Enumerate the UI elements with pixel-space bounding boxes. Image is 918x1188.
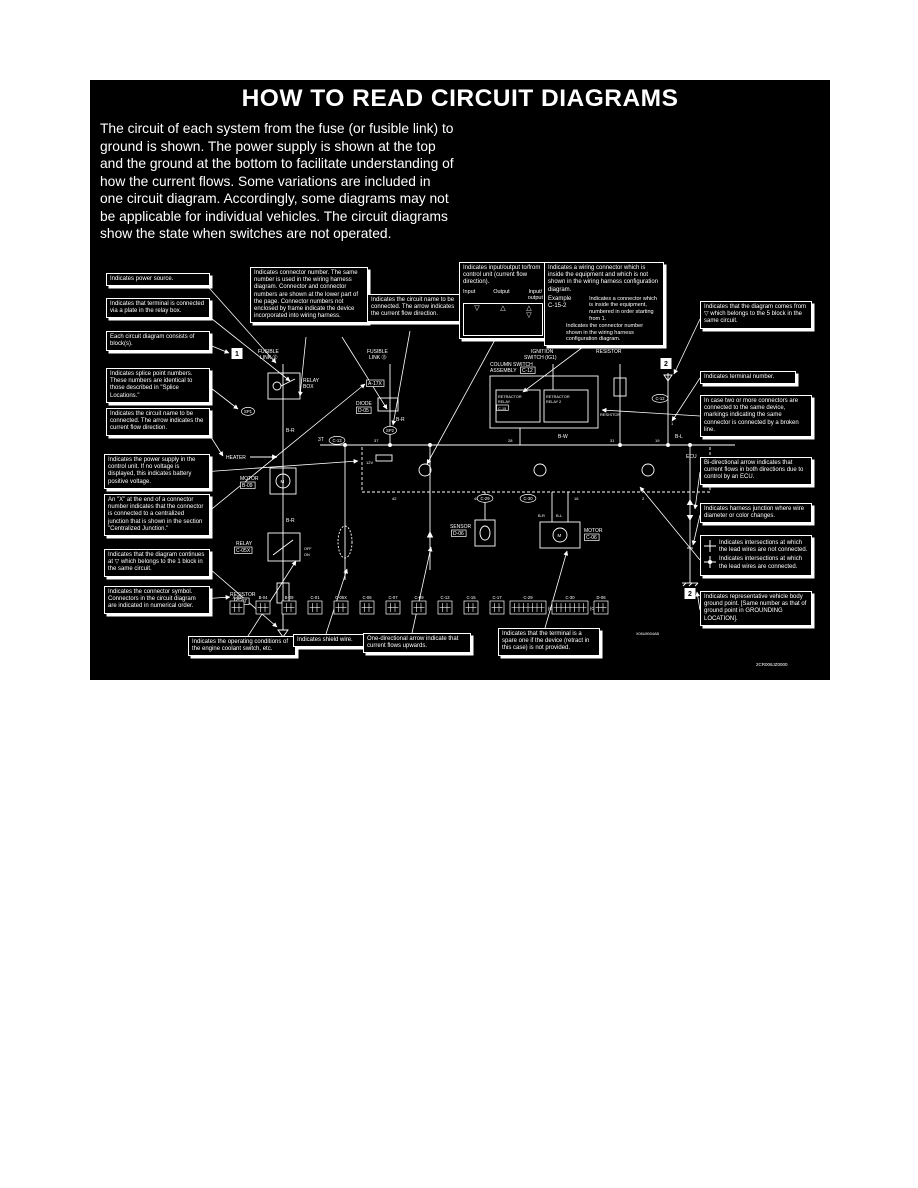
- svg-text:LINK ⑬: LINK ⑬: [369, 354, 387, 361]
- callout-terminal-number: Indicates terminal number.: [700, 371, 796, 384]
- svg-text:OFF: OFF: [304, 547, 312, 551]
- callout-harness-junction: Indicates harness junction where wire di…: [700, 503, 812, 523]
- wiring-connector-example: Example C-15-2: [548, 296, 586, 322]
- io-labels: Input Output Input/ output: [463, 289, 543, 302]
- svg-text:B-04: B-04: [259, 595, 269, 600]
- wiring-connector-note-number: Indicates the connector number shown in …: [548, 323, 660, 343]
- svg-text:C-30: C-30: [565, 595, 575, 600]
- callout-diagram-comes-from: Indicates that the diagram comes from ▽ …: [700, 301, 812, 329]
- callout-intersections: Indicates intersections at which the lea…: [700, 535, 812, 576]
- callout-operating-conditions: Indicates the operating conditions of th…: [188, 636, 296, 656]
- wiring-connector-note-equipment: Indicates a connector which is inside th…: [589, 296, 660, 322]
- svg-text:1: 1: [671, 421, 674, 426]
- svg-text:C-30: C-30: [523, 496, 533, 501]
- svg-text:B-W: B-W: [558, 434, 568, 440]
- svg-text:D-05: D-05: [358, 408, 369, 414]
- svg-text:16: 16: [574, 496, 579, 501]
- svg-text:C-29: C-29: [523, 595, 533, 600]
- svg-text:42: 42: [392, 496, 397, 501]
- svg-text:19: 19: [655, 438, 660, 443]
- io-symbol-box: ▽ △ △ ▽: [463, 303, 543, 336]
- svg-text:B-09: B-09: [285, 595, 295, 600]
- svg-text:SENSOR: SENSOR: [450, 524, 472, 530]
- svg-text:2CR006JZ0000: 2CR006JZ0000: [756, 662, 788, 667]
- svg-text:C-07: C-07: [388, 595, 398, 600]
- svg-text:C-12: C-12: [440, 595, 450, 600]
- svg-text:2: 2: [688, 591, 692, 598]
- svg-text:B-R: B-R: [286, 428, 295, 434]
- svg-text:RETRACTOR: RETRACTOR: [546, 395, 570, 399]
- svg-text:C-12: C-12: [655, 396, 665, 401]
- svg-text:B-L: B-L: [675, 434, 683, 440]
- callout-diagram-continues: Indicates that the diagram continues at …: [104, 549, 210, 577]
- svg-text:2: 2: [664, 361, 668, 368]
- svg-text:C-06: C-06: [362, 595, 372, 600]
- io-caption: Indicates input/output to/from control u…: [463, 265, 543, 287]
- svg-text:C-05X: C-05X: [335, 595, 347, 600]
- callout-relay-plate: Indicates that terminal is connected via…: [106, 298, 210, 318]
- crossing-not-connected-icon: [704, 540, 716, 552]
- svg-text:B-R: B-R: [538, 513, 545, 518]
- svg-text:SP2: SP2: [386, 428, 395, 433]
- svg-text:C-06: C-06: [586, 535, 597, 541]
- callout-circuit-name-left: Indicates the circuit name to be connect…: [106, 408, 210, 436]
- output-triangle-icon: △: [500, 305, 505, 312]
- svg-text:SP1: SP1: [244, 409, 253, 414]
- callout-input-output: Indicates input/output to/from control u…: [459, 262, 547, 339]
- svg-text:ASSEMBLY: ASSEMBLY: [490, 368, 517, 374]
- svg-text:RELAY: RELAY: [236, 541, 253, 547]
- svg-text:C-17: C-17: [492, 595, 502, 600]
- svg-text:M: M: [281, 479, 285, 484]
- svg-text:C-29: C-29: [480, 496, 490, 501]
- svg-text:D-06: D-06: [453, 531, 464, 537]
- callout-power-source: Indicates power source.: [106, 273, 210, 286]
- crossing-connected-icon: [704, 556, 716, 568]
- callout-connector-symbol: Indicates the connector symbol. Connecto…: [104, 586, 210, 614]
- svg-text:B-R: B-R: [396, 417, 405, 423]
- svg-text:C-05X: C-05X: [236, 548, 251, 554]
- svg-text:C-13: C-13: [332, 438, 342, 443]
- circuit-howto-panel: HOW TO READ CIRCUIT DIAGRAMS The circuit…: [90, 80, 830, 680]
- svg-text:A-02: A-02: [233, 595, 243, 600]
- svg-text:C-15: C-15: [498, 407, 506, 411]
- svg-text:MOTOR: MOTOR: [584, 528, 603, 534]
- intersections-not-connected-text: Indicates intersections at which the lea…: [719, 540, 808, 554]
- callout-centralized-junction: An "X" at the end of a connector number …: [104, 494, 210, 536]
- svg-text:MOTOR: MOTOR: [240, 476, 259, 482]
- callout-broken-line: In case two or more connectors are conne…: [700, 395, 812, 437]
- io-output-label: Output: [493, 289, 510, 302]
- callout-control-unit-power: Indicates the power supply in the contro…: [104, 454, 210, 489]
- svg-text:3T: 3T: [318, 437, 324, 443]
- svg-text:12V: 12V: [366, 460, 373, 465]
- page: { "page": { "title": "HOW TO READ CIRCUI…: [0, 0, 918, 1188]
- callout-shield-wire: Indicates shield wire.: [293, 634, 369, 647]
- callout-circuit-blocks: Each circuit diagram consists of block(s…: [106, 331, 210, 351]
- svg-text:C-09: C-09: [414, 595, 424, 600]
- io-input-label: Input: [463, 289, 475, 302]
- bidirectional-arrow: [688, 500, 693, 505]
- svg-text:ECU: ECU: [686, 454, 697, 460]
- callout-wiring-connector: Indicates a wiring connector which is in…: [544, 262, 664, 346]
- svg-text:31: 31: [610, 438, 615, 443]
- callout-connector-number: Indicates connector number. The same num…: [250, 267, 368, 323]
- svg-text:RELAY 2: RELAY 2: [546, 400, 561, 404]
- svg-text:RELAY: RELAY: [498, 400, 511, 404]
- input-triangle-icon: ▽: [474, 305, 479, 312]
- svg-text:SWITCH (IG1): SWITCH (IG1): [524, 355, 557, 361]
- svg-text:HEATER: HEATER: [226, 455, 246, 461]
- svg-text:28: 28: [508, 438, 513, 443]
- callout-circuit-name-top: Indicates the circuit name to be connect…: [367, 294, 463, 322]
- svg-text:LINK ⑫: LINK ⑫: [260, 354, 278, 361]
- io-triangle-icon: △ ▽: [526, 305, 531, 319]
- callout-bidirectional-arrow: Bi-directional arrow indicates that curr…: [700, 457, 812, 485]
- callout-body-ground-point: Indicates representative vehicle body gr…: [700, 591, 812, 626]
- svg-text:RETRACTOR: RETRACTOR: [498, 395, 522, 399]
- svg-text:C-12: C-12: [522, 368, 533, 374]
- svg-text:D-06: D-06: [596, 595, 606, 600]
- svg-text:C-15: C-15: [466, 595, 476, 600]
- svg-text:B-L: B-L: [556, 513, 563, 518]
- svg-text:B-09: B-09: [242, 483, 253, 489]
- svg-text:B-R: B-R: [286, 518, 295, 524]
- svg-text:2: 2: [642, 496, 645, 501]
- callout-one-directional: One-directional arrow indicate that curr…: [363, 633, 471, 653]
- one-directional-arrow: [428, 532, 433, 537]
- svg-text:C-01: C-01: [310, 595, 320, 600]
- wiring-connector-text: Indicates a wiring connector which is in…: [548, 265, 660, 294]
- callout-spare-terminal: Indicates that the terminal is a spare o…: [498, 628, 600, 656]
- svg-text:DIODE: DIODE: [356, 401, 373, 407]
- svg-text:37: 37: [374, 438, 379, 443]
- svg-text:RESISTOR: RESISTOR: [600, 412, 620, 417]
- svg-text:X06U8004AB: X06U8004AB: [636, 632, 659, 636]
- svg-text:BOX: BOX: [303, 384, 314, 390]
- svg-text:RESISTOR: RESISTOR: [596, 349, 622, 355]
- svg-text:A-17X: A-17X: [368, 381, 383, 387]
- svg-text:M: M: [558, 533, 562, 538]
- intersections-connected-text: Indicates intersections at which the lea…: [719, 556, 808, 570]
- svg-text:1: 1: [235, 351, 239, 358]
- io-io-label: Input/ output: [528, 289, 543, 302]
- svg-text:ON: ON: [304, 553, 310, 557]
- callout-splice-points: Indicates splice point numbers. These nu…: [106, 368, 210, 403]
